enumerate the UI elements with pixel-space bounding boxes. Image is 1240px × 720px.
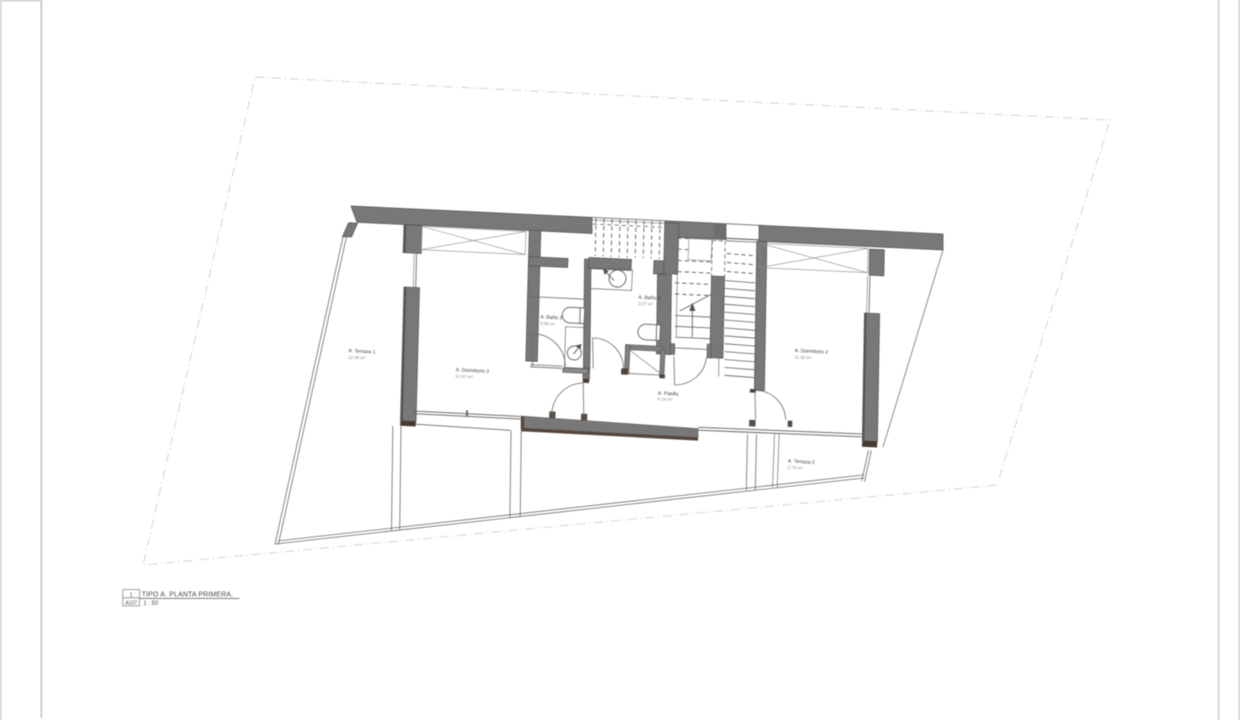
svg-text:12.97 m²: 12.97 m²	[455, 374, 473, 380]
svg-text:TIPO A. PLANTA PRIMERA.: TIPO A. PLANTA PRIMERA.	[142, 592, 233, 599]
svg-text:2.75 m²: 2.75 m²	[786, 465, 803, 471]
svg-text:3.07 m²: 3.07 m²	[638, 301, 654, 307]
svg-text:12.06 m²: 12.06 m²	[348, 355, 366, 361]
svg-text:1 : 50: 1 : 50	[143, 601, 159, 607]
svg-text:6.14 m²: 6.14 m²	[657, 396, 673, 402]
svg-text:11.42 m²: 11.42 m²	[794, 354, 812, 360]
svg-text:3.08 m²: 3.08 m²	[540, 321, 556, 327]
svg-text:1: 1	[130, 592, 133, 598]
svg-text:A107: A107	[125, 600, 137, 606]
